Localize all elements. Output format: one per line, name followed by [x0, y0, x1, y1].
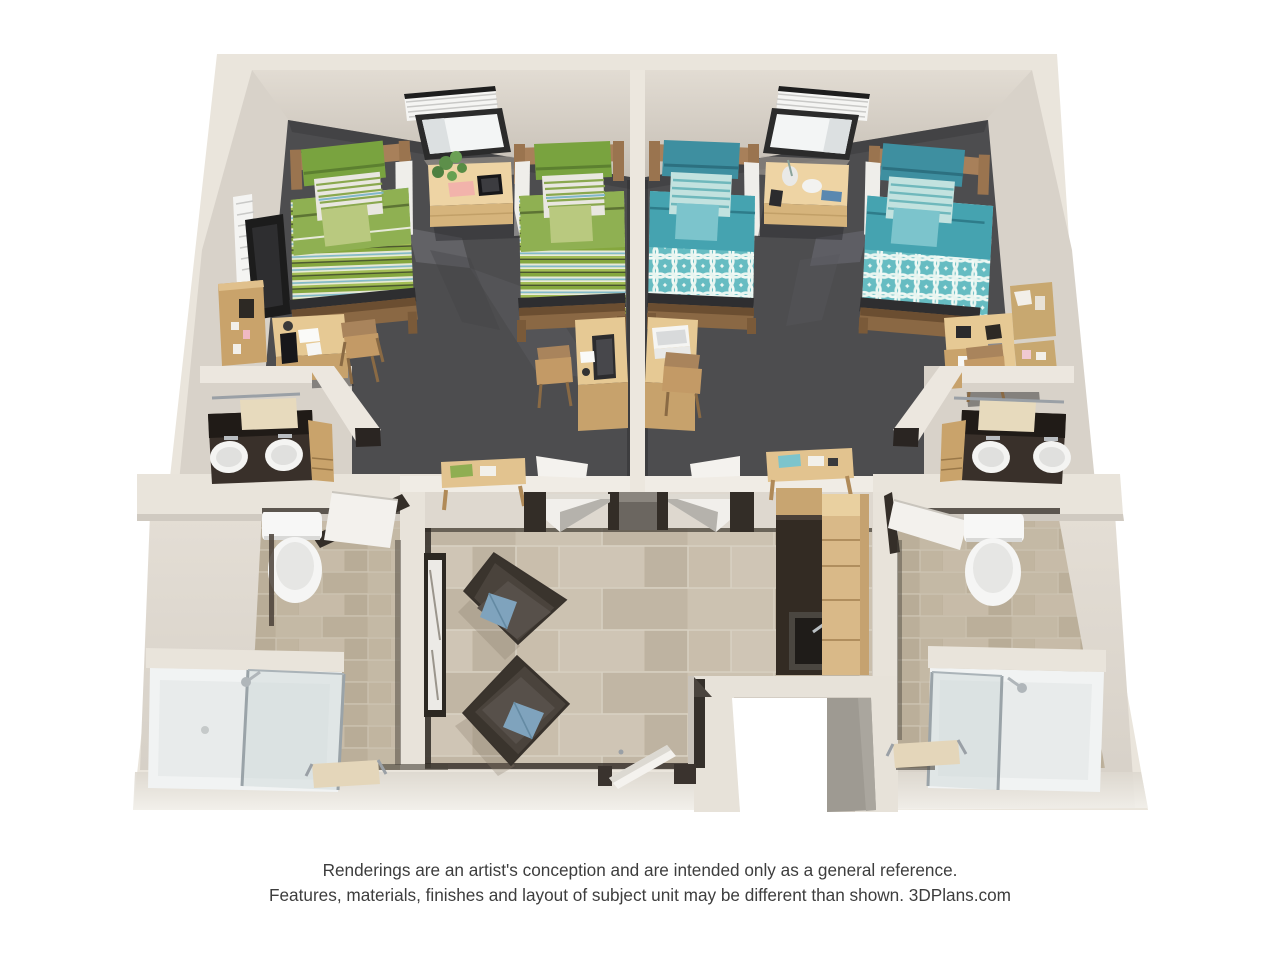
svg-text:Renderings are an artist's con: Renderings are an artist's conception an… — [323, 860, 958, 880]
svg-text:Features, materials, finishes: Features, materials, finishes and layout… — [269, 885, 1011, 905]
